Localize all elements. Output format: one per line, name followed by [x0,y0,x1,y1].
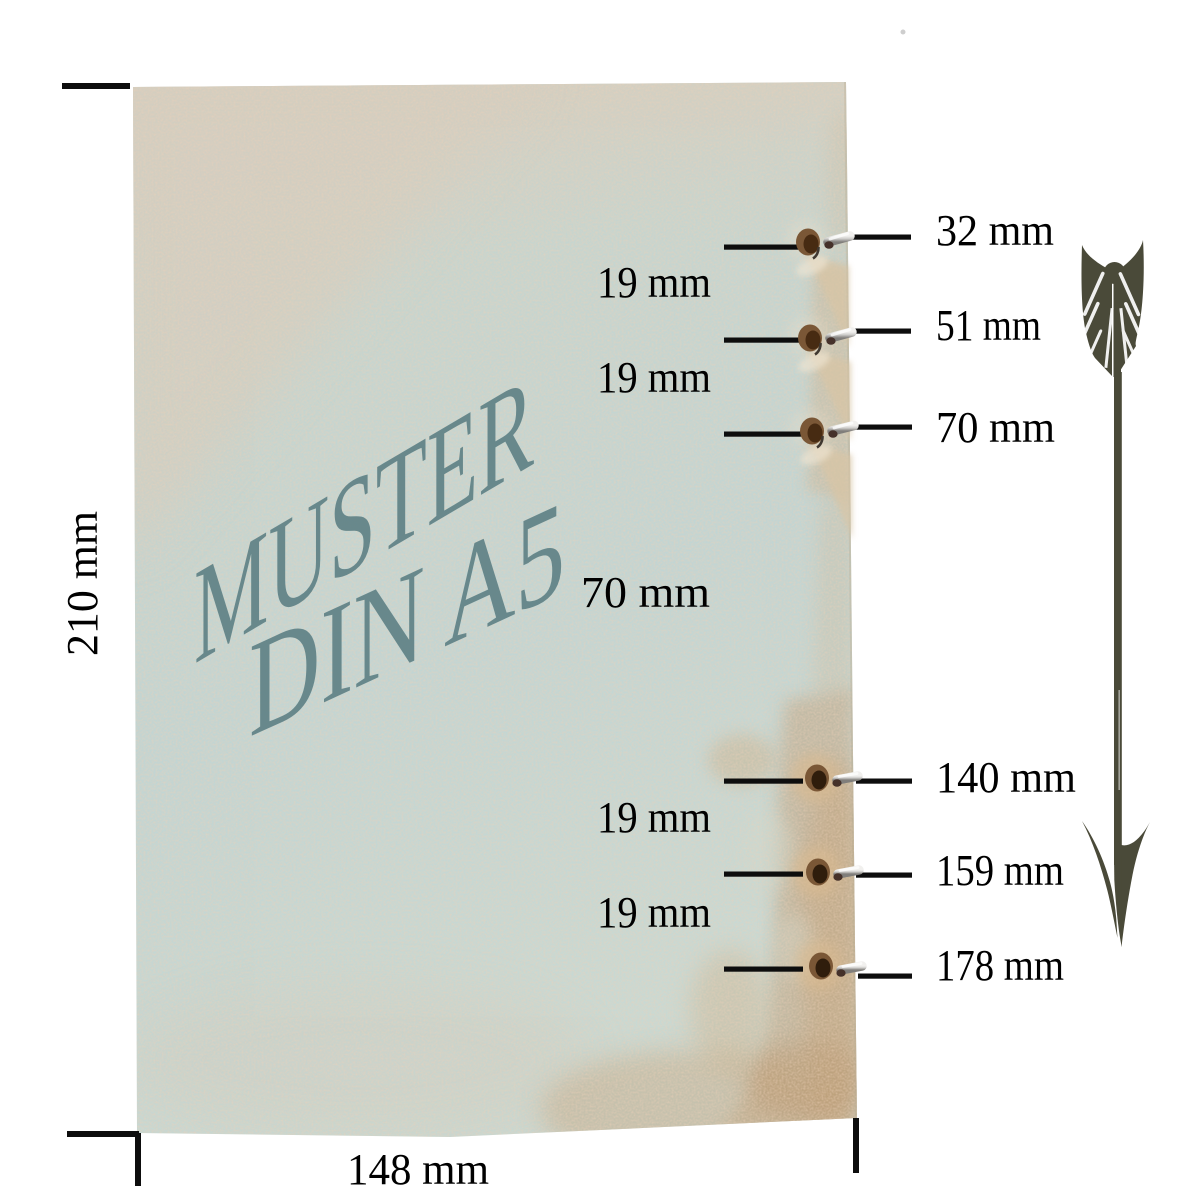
svg-text:19 mm: 19 mm [597,888,711,937]
svg-text:210 mm: 210 mm [58,511,107,656]
svg-text:70 mm: 70 mm [581,568,710,617]
svg-text:148 mm: 148 mm [347,1145,489,1194]
svg-text:178 mm: 178 mm [936,941,1064,990]
svg-text:70 mm: 70 mm [936,403,1055,452]
svg-text:19 mm: 19 mm [597,258,711,307]
svg-text:140 mm: 140 mm [936,753,1076,802]
svg-text:32 mm: 32 mm [936,206,1054,255]
svg-text:51 mm: 51 mm [936,301,1041,350]
svg-text:159 mm: 159 mm [936,846,1064,895]
svg-text:19 mm: 19 mm [597,793,711,842]
svg-text:19 mm: 19 mm [597,353,711,402]
